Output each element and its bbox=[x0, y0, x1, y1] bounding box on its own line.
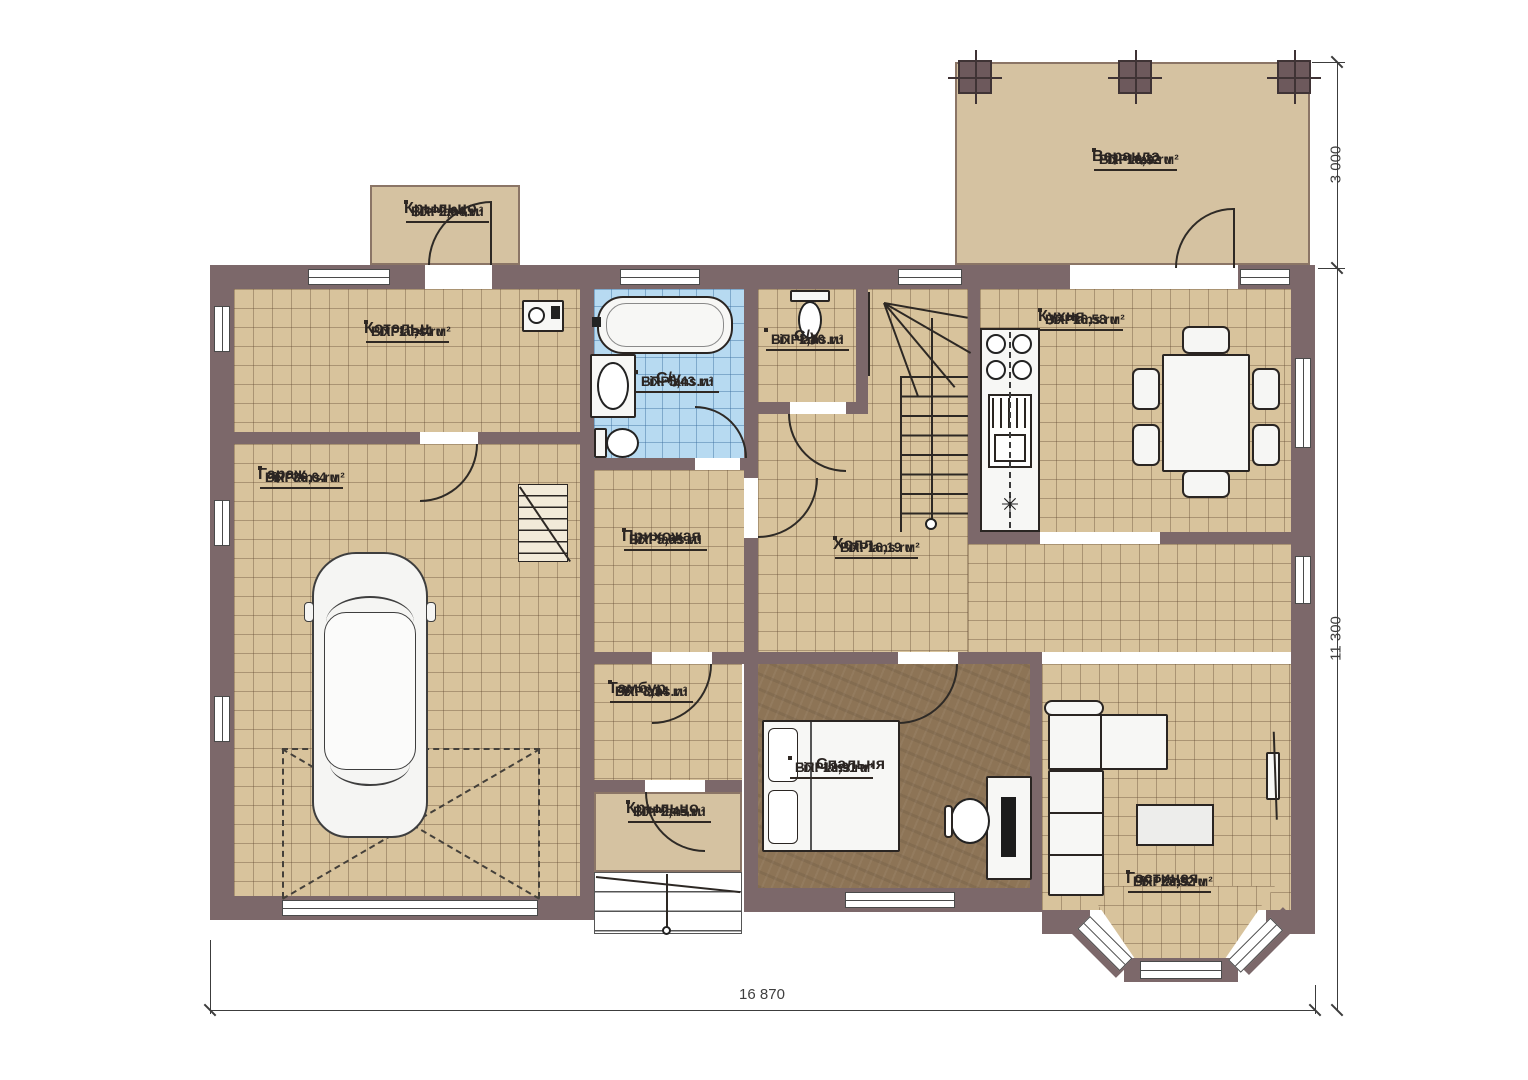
stairs-guide-line bbox=[931, 318, 933, 524]
car-mirror bbox=[426, 602, 436, 622]
sink-basin bbox=[597, 362, 629, 410]
doorway-boiler-garage bbox=[420, 432, 478, 444]
sofa-armrest-top bbox=[1044, 700, 1104, 716]
room-area: ВП: 16,32 м² bbox=[1094, 150, 1184, 169]
window-bath-top bbox=[620, 269, 700, 285]
washing-machine-drum bbox=[528, 307, 545, 324]
room-area: ВП: 23,32 м² bbox=[1128, 872, 1218, 891]
window-garage-left-2 bbox=[214, 696, 230, 742]
door-leaf-veranda bbox=[1233, 208, 1235, 268]
bed-blanket-line bbox=[810, 722, 812, 850]
dining-chair bbox=[1252, 368, 1280, 410]
room-area: ВП: 10,44 м² bbox=[366, 322, 456, 341]
dining-chair bbox=[1132, 368, 1160, 410]
window-bay-bottom bbox=[1140, 961, 1222, 979]
toilet-bowl bbox=[606, 428, 639, 458]
floor-plan: ✳ Веранда FixPlans.ru ВП: 16,32 м² Крыль… bbox=[0, 0, 1528, 1080]
hall-strip-floor bbox=[968, 544, 1291, 652]
doorway-porch-top bbox=[425, 265, 492, 289]
window-bedroom-bottom bbox=[845, 892, 955, 908]
room-area: ВП: 1,80 м² bbox=[766, 330, 848, 349]
stairs-guide-start bbox=[925, 518, 937, 530]
dining-chair bbox=[1132, 424, 1160, 466]
porch-steps-guide bbox=[666, 874, 668, 930]
veranda-column bbox=[958, 60, 992, 94]
room-area: ВП: 5,69 м² bbox=[624, 530, 706, 549]
dim-ext-left bbox=[210, 940, 211, 1014]
porch-steps-start bbox=[662, 926, 671, 935]
room-area: ВП: 3,34 м² bbox=[610, 682, 692, 701]
sofa-seat-horizontal bbox=[1048, 714, 1168, 770]
room-area: ВП: 2,64 м² bbox=[406, 202, 488, 221]
doorway-veranda bbox=[1070, 265, 1238, 289]
wall-stairs-right bbox=[968, 289, 980, 544]
desk-monitor bbox=[1001, 797, 1016, 857]
dim-line-bottom bbox=[210, 1010, 1315, 1011]
dim-label-bottom: 16 870 bbox=[697, 986, 827, 1003]
bathtub-rim bbox=[606, 303, 724, 347]
room-area: ВП: 5,43 м² bbox=[636, 372, 718, 391]
window-boiler-top bbox=[308, 269, 390, 285]
doorway-vestibule-porch bbox=[645, 780, 705, 792]
window-boiler-left bbox=[214, 306, 230, 352]
sofa-seam bbox=[1100, 716, 1102, 768]
sofa-seat-vertical bbox=[1048, 770, 1104, 896]
wall-kitchen-bottom-b bbox=[1160, 532, 1291, 544]
doorway-bathroom-main bbox=[695, 458, 740, 470]
wall-bathsmall-right bbox=[856, 289, 868, 414]
stairs-straight-run bbox=[900, 376, 968, 532]
sofa-seam bbox=[1050, 812, 1102, 814]
dim-label-veranda-depth: 3 000 bbox=[1328, 135, 1345, 195]
dining-chair bbox=[1182, 470, 1230, 498]
doorway-bathroom-small bbox=[790, 402, 846, 414]
desk-chair-back bbox=[944, 805, 953, 838]
doorway-hallway-vestibule bbox=[652, 652, 712, 664]
dining-chair bbox=[1182, 326, 1230, 354]
room-area: ВП: 36,04 м² bbox=[260, 468, 350, 487]
dim-label-right: 11 300 bbox=[1328, 609, 1345, 669]
doorway-kitchen-hall bbox=[1040, 532, 1160, 544]
veranda-column bbox=[1118, 60, 1152, 94]
stove-burner bbox=[1012, 334, 1032, 354]
room-area: ВП: 13,91 м² bbox=[790, 758, 880, 777]
car-mirror bbox=[304, 602, 314, 622]
dim-line-right bbox=[1337, 62, 1338, 1010]
dim-ext-topright-2 bbox=[1318, 268, 1345, 269]
doorway-bedroom bbox=[898, 652, 958, 664]
wall-boiler-garage bbox=[234, 432, 580, 444]
coffee-table bbox=[1136, 804, 1214, 846]
sofa-seam bbox=[1050, 854, 1102, 856]
dining-table bbox=[1162, 354, 1250, 472]
window-hall-right bbox=[1295, 556, 1311, 604]
car-cabin bbox=[324, 612, 416, 770]
wall-center-right bbox=[744, 289, 758, 888]
stairs-edge bbox=[868, 292, 870, 376]
veranda-column bbox=[1277, 60, 1311, 94]
room-area: ВП: 16,58 м² bbox=[1040, 310, 1130, 329]
room-area: ВП: 2,45 м² bbox=[628, 802, 710, 821]
desk-chair bbox=[950, 798, 990, 844]
window-hall-top bbox=[898, 269, 962, 285]
window-garage-left-1 bbox=[214, 500, 230, 546]
dining-chair bbox=[1252, 424, 1280, 466]
doorway-hallway-hall bbox=[744, 478, 758, 538]
stove-burner bbox=[986, 334, 1006, 354]
wall-left bbox=[210, 265, 234, 920]
bed-pillow bbox=[768, 790, 798, 844]
fridge-icon: ✳ bbox=[996, 492, 1024, 520]
window-kitchen-right bbox=[1295, 358, 1311, 448]
stove-burner bbox=[1012, 360, 1032, 380]
tv bbox=[1266, 752, 1280, 800]
bathtub-tap bbox=[592, 317, 601, 327]
wall-hall-bedroom bbox=[744, 652, 1042, 664]
garage-door bbox=[282, 900, 538, 916]
door-leaf-porch-top bbox=[490, 203, 492, 265]
washing-machine-panel bbox=[551, 306, 560, 319]
stove-burner bbox=[986, 360, 1006, 380]
porch-steps bbox=[594, 872, 742, 934]
hallway-floor bbox=[594, 470, 744, 652]
wall-kitchen-bottom-a bbox=[980, 532, 1040, 544]
window-kitchen-top bbox=[1240, 269, 1290, 285]
room-area: ВП: 16,19 м² bbox=[835, 538, 925, 557]
